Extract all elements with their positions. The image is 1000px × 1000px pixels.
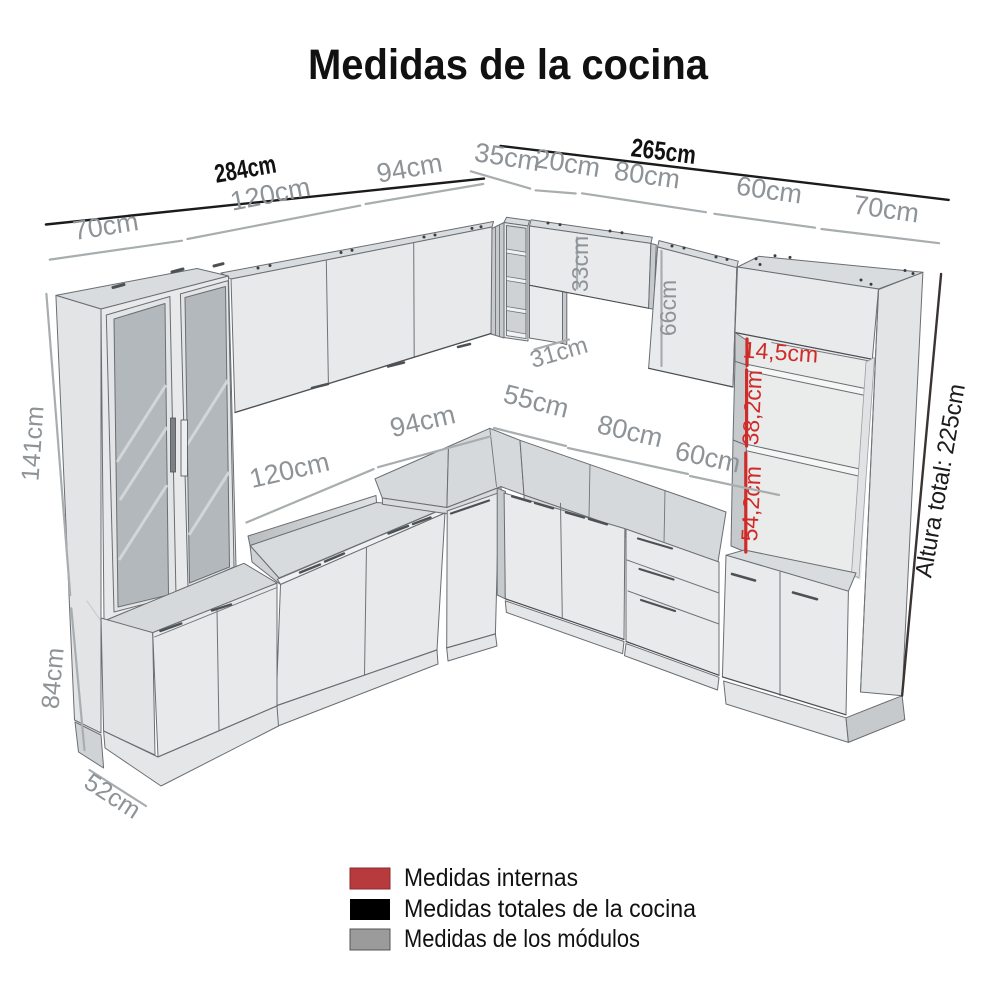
svg-text:Medidas totales de la cocina: Medidas totales de la cocina: [404, 895, 696, 923]
svg-text:33cm: 33cm: [567, 236, 593, 292]
svg-text:54,2cm: 54,2cm: [736, 465, 766, 542]
svg-text:Medidas internas: Medidas internas: [404, 864, 578, 892]
svg-text:66cm: 66cm: [655, 280, 681, 336]
svg-text:Medidas de los módulos: Medidas de los módulos: [404, 925, 640, 953]
svg-text:38,2cm: 38,2cm: [737, 369, 767, 446]
svg-text:84cm: 84cm: [36, 647, 69, 710]
svg-text:141cm: 141cm: [16, 405, 49, 482]
svg-text:Medidas de la cocina: Medidas de la cocina: [308, 41, 709, 89]
svg-text:14,5cm: 14,5cm: [742, 336, 819, 367]
